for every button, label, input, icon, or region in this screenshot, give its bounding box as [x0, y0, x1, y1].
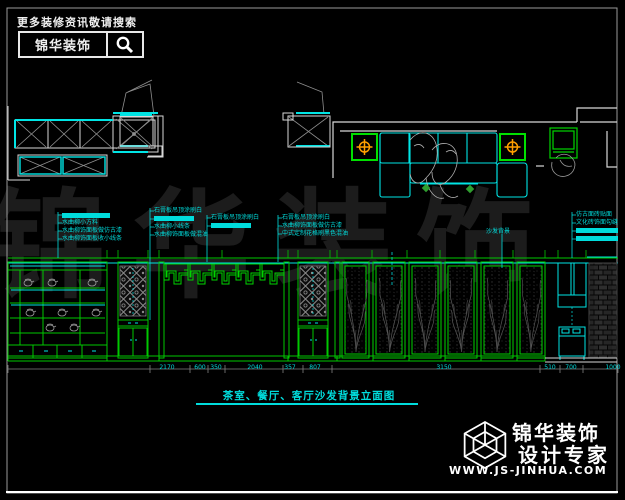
armchair-plan [550, 128, 577, 176]
drawing-title: 茶室、餐厅、客厅沙发背景立面图 [203, 388, 415, 403]
brick-wall-column [587, 257, 617, 358]
brand-logo-text: 锦华装饰 [20, 33, 106, 56]
opening-valance [159, 262, 289, 358]
callout-highlight-bar [576, 236, 618, 241]
callout-label: 石膏板吊顶涂刷白 [282, 215, 330, 221]
callout-label: 中式定制花格刷黑色混油 [282, 231, 348, 237]
callout-label: 文化砖饰面勾缝 [576, 220, 618, 226]
plan-view [8, 80, 617, 198]
tree-art-branches [346, 278, 541, 352]
dimension-value: 350 [210, 364, 221, 371]
callout-label: 石膏板吊顶涂刷白 [211, 215, 259, 221]
lattice-cabinet-left [118, 262, 148, 358]
cad-screenshot-stage: 锦华装饰 [0, 0, 625, 500]
brand-search-box[interactable]: 锦华装饰 [18, 31, 144, 58]
dimension-value: 357 [284, 364, 295, 371]
callout-highlight-bar [62, 213, 110, 218]
search-icon[interactable] [106, 33, 142, 56]
bookcase-elevation [8, 262, 107, 358]
callout-label: 水曲柳饰面板做仿古漆 [282, 223, 342, 229]
callout-label: 水曲柳饰面板做仿古漆 [62, 228, 122, 234]
callout-highlight-bar [576, 228, 618, 233]
search-hint-text: 更多装修资讯敬请搜索 [17, 14, 137, 30]
lattice-cabinet-right [298, 262, 328, 358]
dimension-value: 510 [544, 364, 555, 371]
callout-label: 水曲柳小方料 [62, 220, 98, 226]
dimension-value: 2170 [159, 364, 174, 371]
dimension-value: 2040 [247, 364, 262, 371]
console-cabinet [558, 263, 586, 360]
callout-label: 水曲柳饰面板收小线条 [62, 236, 122, 242]
callout-label: 石膏板吊顶涂刷白 [154, 208, 202, 214]
dimension-value: 807 [309, 364, 320, 371]
title-underline [196, 403, 418, 405]
callout-highlight-bar [154, 216, 194, 221]
sofa-throws [410, 133, 458, 199]
sofa-plan [380, 133, 527, 197]
tree-art-panels [342, 262, 545, 358]
dimension-value: 1000 [605, 364, 620, 371]
footer-website-link[interactable]: WWW.JS-JINHUA.COM [449, 464, 607, 477]
callout-label: 水曲柳小线条 [154, 224, 190, 230]
dimension-value: 700 [565, 364, 576, 371]
dimension-value: 600 [194, 364, 205, 371]
sofa-background-label: 沙发背景 [486, 226, 510, 235]
callout-label: 仿古面砖贴面 [576, 212, 612, 218]
dimension-value: 3150 [436, 364, 451, 371]
callout-label: 水曲柳饰面板做混油 [154, 232, 208, 238]
callout-highlight-bar [211, 223, 251, 228]
